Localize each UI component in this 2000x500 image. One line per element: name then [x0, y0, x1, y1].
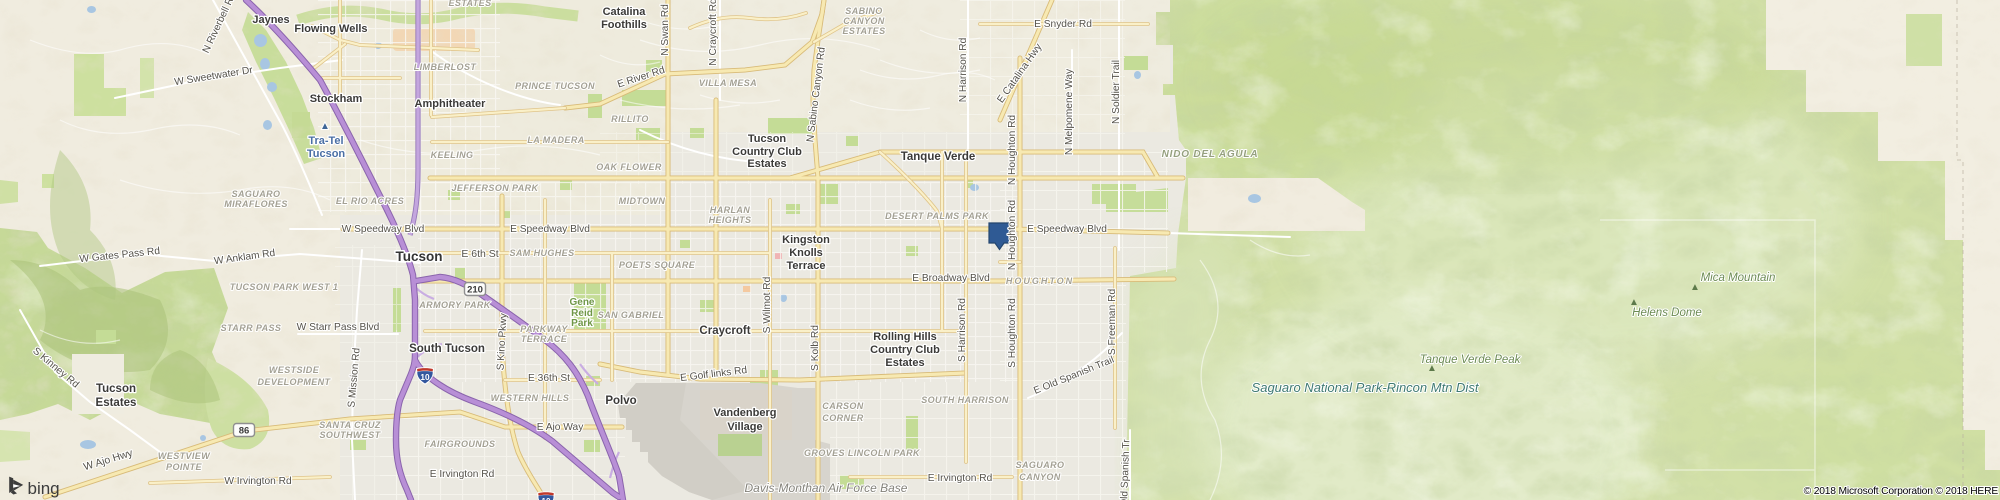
- svg-text:HOUGHTON: HOUGHTON: [1006, 276, 1074, 286]
- svg-text:MIDTOWN: MIDTOWN: [619, 196, 666, 206]
- svg-text:Village: Village: [727, 421, 762, 433]
- svg-text:S Old Spanish Tr: S Old Spanish Tr: [1119, 439, 1133, 500]
- svg-text:Kingston: Kingston: [782, 234, 830, 246]
- svg-text:SAGUARO: SAGUARO: [1016, 460, 1065, 470]
- svg-text:VILLA MESA: VILLA MESA: [699, 78, 757, 88]
- svg-text:Stockham: Stockham: [310, 93, 363, 105]
- svg-text:Flowing Wells: Flowing Wells: [294, 23, 367, 35]
- svg-text:CANYON: CANYON: [843, 16, 885, 26]
- svg-text:MIRAFLORES: MIRAFLORES: [224, 199, 288, 209]
- svg-text:Tucson: Tucson: [396, 249, 443, 264]
- svg-text:Tucson: Tucson: [307, 148, 346, 160]
- svg-text:Park: Park: [571, 318, 593, 329]
- svg-text:S Wilmot Rd: S Wilmot Rd: [762, 276, 773, 333]
- svg-text:Tucson: Tucson: [748, 133, 787, 145]
- svg-text:CARSON: CARSON: [822, 401, 864, 411]
- svg-text:Estates: Estates: [885, 357, 924, 369]
- svg-text:SOUTHWEST: SOUTHWEST: [319, 430, 381, 440]
- svg-text:Tanque Verde: Tanque Verde: [901, 151, 976, 163]
- svg-text:SOUTH HARRISON: SOUTH HARRISON: [921, 395, 1009, 405]
- svg-text:W Starr Pass Blvd: W Starr Pass Blvd: [297, 322, 380, 333]
- svg-text:10: 10: [420, 373, 430, 382]
- svg-text:Tanque Verde Peak: Tanque Verde Peak: [1420, 354, 1522, 366]
- svg-text:POETS SQUARE: POETS SQUARE: [619, 260, 696, 270]
- svg-text:Gene: Gene: [569, 297, 594, 308]
- svg-text:S Kolb Rd: S Kolb Rd: [810, 325, 821, 371]
- svg-text:NIDO DEL AGULA: NIDO DEL AGULA: [1162, 149, 1259, 160]
- svg-text:S Freeman Rd: S Freeman Rd: [1107, 289, 1118, 356]
- svg-text:▲: ▲: [1690, 282, 1700, 293]
- svg-text:N Soldier Trail: N Soldier Trail: [1111, 60, 1122, 124]
- svg-text:Helens Dome: Helens Dome: [1632, 307, 1702, 319]
- svg-text:N Harrison Rd: N Harrison Rd: [958, 37, 969, 102]
- svg-text:Craycroft: Craycroft: [699, 325, 750, 337]
- svg-text:S Harrison Rd: S Harrison Rd: [957, 298, 968, 362]
- svg-text:Amphitheater: Amphitheater: [415, 98, 487, 110]
- svg-text:Saguaro National Park-Rincon M: Saguaro National Park-Rincon Mtn Dist: [1252, 380, 1480, 395]
- svg-text:Country Club: Country Club: [732, 146, 802, 158]
- svg-text:Estates: Estates: [747, 158, 786, 170]
- svg-text:JEFFERSON PARK: JEFFERSON PARK: [452, 183, 540, 193]
- svg-text:Vandenberg: Vandenberg: [714, 407, 777, 419]
- svg-text:Mica Mountain: Mica Mountain: [1701, 272, 1776, 284]
- svg-text:▲: ▲: [320, 121, 330, 132]
- svg-text:PRINCE TUCSON: PRINCE TUCSON: [515, 81, 595, 91]
- svg-text:HEIGHTS: HEIGHTS: [709, 215, 752, 225]
- svg-text:N Houghton Rd: N Houghton Rd: [1007, 200, 1018, 271]
- svg-text:ARMORY PARK: ARMORY PARK: [418, 300, 492, 310]
- svg-text:Tucson: Tucson: [96, 383, 136, 395]
- svg-text:Foothills: Foothills: [601, 19, 647, 31]
- svg-text:LA MADERA: LA MADERA: [527, 135, 584, 145]
- svg-text:PARKWAY: PARKWAY: [520, 324, 568, 334]
- svg-text:Rolling Hills: Rolling Hills: [873, 331, 937, 343]
- svg-text:WESTSIDE: WESTSIDE: [269, 365, 320, 375]
- svg-text:OAK FLOWER: OAK FLOWER: [596, 162, 662, 172]
- svg-text:TERRACE: TERRACE: [521, 334, 568, 344]
- svg-text:N Houghton Rd: N Houghton Rd: [1007, 115, 1018, 186]
- svg-text:EL RIO ACRES: EL RIO ACRES: [336, 196, 404, 206]
- svg-text:E Speedway Blvd: E Speedway Blvd: [1027, 224, 1107, 235]
- svg-text:ESTATES: ESTATES: [449, 0, 492, 8]
- svg-text:86: 86: [239, 425, 250, 436]
- svg-text:POINTE: POINTE: [166, 462, 203, 472]
- svg-text:Knolls: Knolls: [789, 247, 823, 259]
- svg-text:WESTVIEW: WESTVIEW: [158, 451, 211, 461]
- svg-text:DEVELOPMENT: DEVELOPMENT: [258, 377, 332, 387]
- svg-text:Jaynes: Jaynes: [252, 14, 289, 26]
- svg-text:bing: bing: [28, 479, 60, 498]
- svg-text:Polvo: Polvo: [605, 395, 636, 407]
- svg-text:RILLITO: RILLITO: [611, 114, 649, 124]
- svg-text:CORNER: CORNER: [822, 413, 864, 423]
- svg-text:KEELING: KEELING: [431, 150, 474, 160]
- svg-text:N Craycroft Rd: N Craycroft Rd: [708, 0, 719, 66]
- svg-text:Catalina: Catalina: [603, 6, 647, 18]
- svg-text:E Broadway Blvd: E Broadway Blvd: [912, 273, 990, 284]
- svg-text:E 36th St: E 36th St: [528, 373, 570, 384]
- svg-text:ESTATES: ESTATES: [843, 26, 886, 36]
- svg-text:E Irvington Rd: E Irvington Rd: [928, 473, 993, 484]
- svg-text:210: 210: [467, 284, 483, 295]
- svg-text:E Irvington Rd: E Irvington Rd: [430, 469, 495, 480]
- svg-text:SAGUARO: SAGUARO: [232, 189, 281, 199]
- svg-text:N Melpomene Way: N Melpomene Way: [1064, 68, 1075, 155]
- svg-text:E Snyder Rd: E Snyder Rd: [1034, 19, 1092, 30]
- svg-text:CANYON: CANYON: [1019, 472, 1061, 482]
- svg-text:W Irvington Rd: W Irvington Rd: [224, 476, 292, 487]
- svg-text:Estates: Estates: [96, 397, 137, 409]
- svg-text:STARR PASS: STARR PASS: [221, 323, 282, 333]
- svg-text:SANTA CRUZ: SANTA CRUZ: [319, 420, 381, 430]
- svg-text:Terrace: Terrace: [787, 260, 826, 272]
- svg-text:WESTERN HILLS: WESTERN HILLS: [491, 393, 570, 403]
- svg-text:Davis-Monthan Air Force Base: Davis-Monthan Air Force Base: [745, 481, 908, 495]
- svg-text:HARLAN: HARLAN: [710, 205, 750, 215]
- svg-text:FAIRGROUNDS: FAIRGROUNDS: [425, 439, 496, 449]
- svg-text:LIMBERLOST: LIMBERLOST: [414, 62, 478, 72]
- svg-text:N Swan Rd: N Swan Rd: [660, 4, 671, 56]
- svg-text:DESERT PALMS PARK: DESERT PALMS PARK: [885, 211, 990, 221]
- svg-text:E 6th St: E 6th St: [461, 248, 498, 260]
- svg-text:SABINO: SABINO: [845, 6, 882, 16]
- svg-text:E Speedway Blvd: E Speedway Blvd: [510, 224, 590, 235]
- svg-text:© 2018 Microsoft Corporation ©: © 2018 Microsoft Corporation © 2018 HERE: [1804, 486, 1999, 497]
- svg-text:TUCSON PARK WEST 1: TUCSON PARK WEST 1: [230, 282, 339, 292]
- svg-text:S Houghton Rd: S Houghton Rd: [1007, 298, 1018, 368]
- svg-text:GROVES LINCOLN PARK: GROVES LINCOLN PARK: [804, 448, 921, 458]
- svg-text:SAN GABRIEL: SAN GABRIEL: [598, 310, 664, 320]
- svg-text:Country Club: Country Club: [870, 344, 940, 356]
- svg-text:Tra-Tel: Tra-Tel: [308, 135, 343, 147]
- svg-text:South Tucson: South Tucson: [409, 343, 485, 355]
- svg-text:SAM HUGHES: SAM HUGHES: [509, 248, 574, 258]
- svg-text:W Speedway Blvd: W Speedway Blvd: [342, 224, 425, 235]
- svg-text:E Ajo Way: E Ajo Way: [537, 422, 585, 433]
